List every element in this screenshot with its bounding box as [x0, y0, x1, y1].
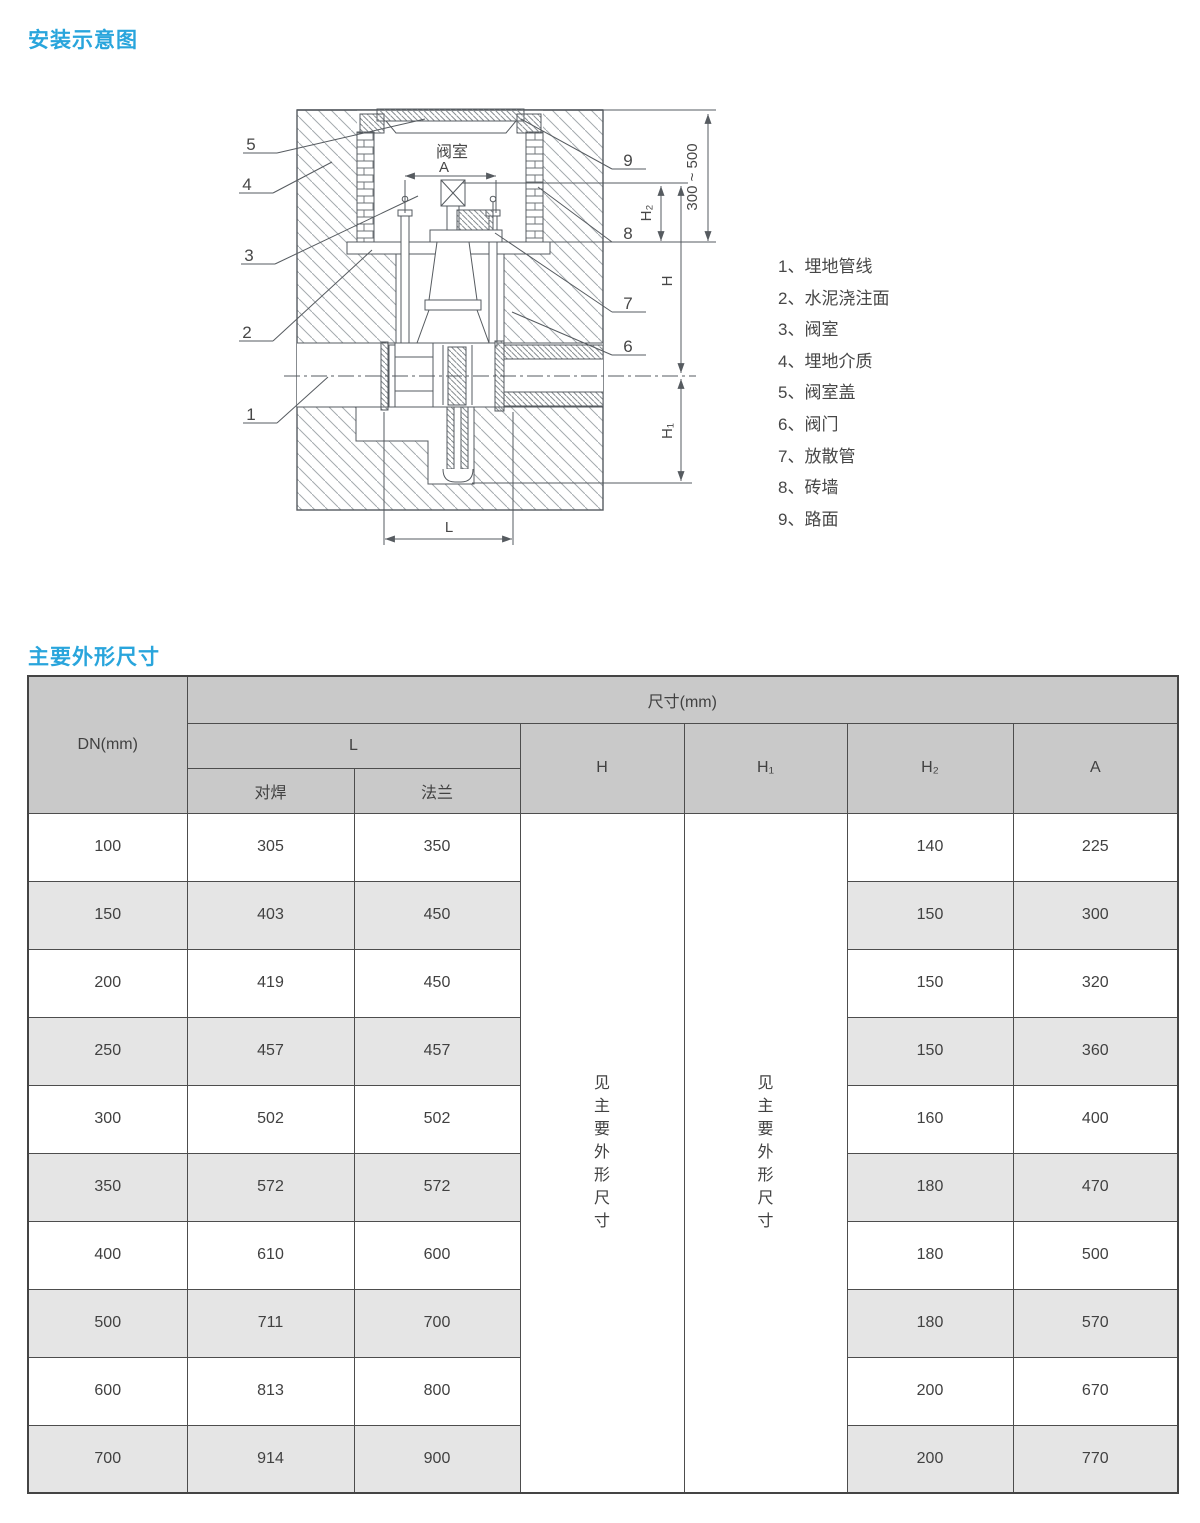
cell-butt: 403 — [187, 881, 354, 949]
cell-flange: 900 — [354, 1425, 520, 1493]
cell-dn: 700 — [28, 1425, 187, 1493]
cell-flange: 457 — [354, 1017, 520, 1085]
cell-h2: 180 — [847, 1221, 1013, 1289]
cell-h2: 140 — [847, 813, 1013, 881]
cell-h2: 150 — [847, 881, 1013, 949]
cell-a: 500 — [1013, 1221, 1178, 1289]
cell-a: 400 — [1013, 1085, 1178, 1153]
cell-a: 360 — [1013, 1017, 1178, 1085]
cell-a: 770 — [1013, 1425, 1178, 1493]
cell-a: 300 — [1013, 881, 1178, 949]
section-title-dimensions: 主要外形尺寸 — [28, 641, 160, 671]
installation-diagram: 阀室 A L 300 ~ 500 H₂ H H₁ 1 2 3 4 5 6 — [230, 90, 740, 570]
cell-dn: 350 — [28, 1153, 187, 1221]
cell-a: 470 — [1013, 1153, 1178, 1221]
cell-dn: 600 — [28, 1357, 187, 1425]
callout-2: 2 — [242, 323, 251, 342]
legend-item-7: 7、放散管 — [778, 441, 889, 473]
header-butt-weld: 对焊 — [187, 768, 354, 813]
cell-butt: 711 — [187, 1289, 354, 1357]
callout-3: 3 — [244, 246, 253, 265]
header-dn: DN(mm) — [28, 676, 187, 813]
page: 安装示意图 — [0, 0, 1200, 1523]
cell-flange: 572 — [354, 1153, 520, 1221]
cell-h2: 180 — [847, 1153, 1013, 1221]
cell-flange: 800 — [354, 1357, 520, 1425]
cell-dn: 100 — [28, 813, 187, 881]
header-h: H — [520, 723, 684, 813]
cell-dn: 500 — [28, 1289, 187, 1357]
cell-dn: 150 — [28, 881, 187, 949]
header-a: A — [1013, 723, 1178, 813]
legend-item-4: 4、埋地介质 — [778, 346, 889, 378]
cell-h2: 200 — [847, 1357, 1013, 1425]
bonnet — [429, 242, 477, 300]
cell-h2: 150 — [847, 949, 1013, 1017]
legend-item-1: 1、埋地管线 — [778, 251, 889, 283]
cell-butt: 572 — [187, 1153, 354, 1221]
cell-dn: 200 — [28, 949, 187, 1017]
cell-butt: 502 — [187, 1085, 354, 1153]
gear-actuator — [457, 210, 493, 230]
cell-butt: 813 — [187, 1357, 354, 1425]
cell-butt: 914 — [187, 1425, 354, 1493]
cell-flange: 502 — [354, 1085, 520, 1153]
legend-item-9: 9、路面 — [778, 504, 889, 536]
cell-h-note: 见主要外形尺寸 — [520, 813, 684, 1493]
brick-wall-left — [357, 132, 374, 242]
cell-butt: 610 — [187, 1221, 354, 1289]
cell-butt: 305 — [187, 813, 354, 881]
cell-butt: 419 — [187, 949, 354, 1017]
cell-butt: 457 — [187, 1017, 354, 1085]
cell-h2: 200 — [847, 1425, 1013, 1493]
cell-a: 570 — [1013, 1289, 1178, 1357]
cell-h2: 150 — [847, 1017, 1013, 1085]
callout-1: 1 — [246, 405, 255, 424]
legend-item-6: 6、阀门 — [778, 409, 889, 441]
cell-h2: 180 — [847, 1289, 1013, 1357]
header-h1: H₁ — [684, 723, 847, 813]
callout-4: 4 — [242, 175, 251, 194]
dimensions-table: DN(mm) 尺寸(mm) L H H₁ H₂ A 对焊 法兰 100 — [27, 675, 1179, 1494]
valve-body — [417, 310, 489, 343]
header-flange: 法兰 — [354, 768, 520, 813]
callout-9: 9 — [623, 151, 632, 170]
dim-label-h: H — [659, 276, 676, 287]
cell-flange: 700 — [354, 1289, 520, 1357]
dim-label-h1: H₁ — [659, 423, 676, 439]
cell-a: 320 — [1013, 949, 1178, 1017]
cell-a: 670 — [1013, 1357, 1178, 1425]
dim-label-depth: 300 ~ 500 — [684, 143, 701, 210]
header-size: 尺寸(mm) — [187, 676, 1178, 723]
legend-item-2: 2、水泥浇注面 — [778, 283, 889, 315]
cell-h1-note: 见主要外形尺寸 — [684, 813, 847, 1493]
header-h2: H₂ — [847, 723, 1013, 813]
dim-label-h2: H₂ — [638, 204, 655, 221]
cell-flange: 600 — [354, 1221, 520, 1289]
dimensions-table-wrap: DN(mm) 尺寸(mm) L H H₁ H₂ A 对焊 法兰 100 — [27, 675, 1179, 1494]
legend-item-3: 3、阀室 — [778, 314, 889, 346]
callout-8: 8 — [623, 224, 632, 243]
callout-5: 5 — [246, 135, 255, 154]
cell-dn: 300 — [28, 1085, 187, 1153]
cell-flange: 450 — [354, 881, 520, 949]
cell-dn: 250 — [28, 1017, 187, 1085]
callout-7: 7 — [623, 294, 632, 313]
section-title-installation: 安装示意图 — [28, 24, 138, 54]
cell-flange: 450 — [354, 949, 520, 1017]
dim-label-l: L — [445, 519, 453, 536]
brick-wall-right — [526, 132, 543, 242]
callout-6: 6 — [623, 337, 632, 356]
diagram-legend: 1、埋地管线 2、水泥浇注面 3、阀室 4、埋地介质 5、阀室盖 6、阀门 7、… — [778, 251, 889, 535]
cell-a: 225 — [1013, 813, 1178, 881]
dim-label-a: A — [439, 159, 449, 176]
cell-dn: 400 — [28, 1221, 187, 1289]
cell-flange: 350 — [354, 813, 520, 881]
cell-h2: 160 — [847, 1085, 1013, 1153]
header-l: L — [187, 723, 520, 768]
legend-item-8: 8、砖墙 — [778, 472, 889, 504]
legend-item-5: 5、阀室盖 — [778, 377, 889, 409]
table-row: 100 305 350 见主要外形尺寸 见主要外形尺寸 140 225 — [28, 813, 1178, 881]
